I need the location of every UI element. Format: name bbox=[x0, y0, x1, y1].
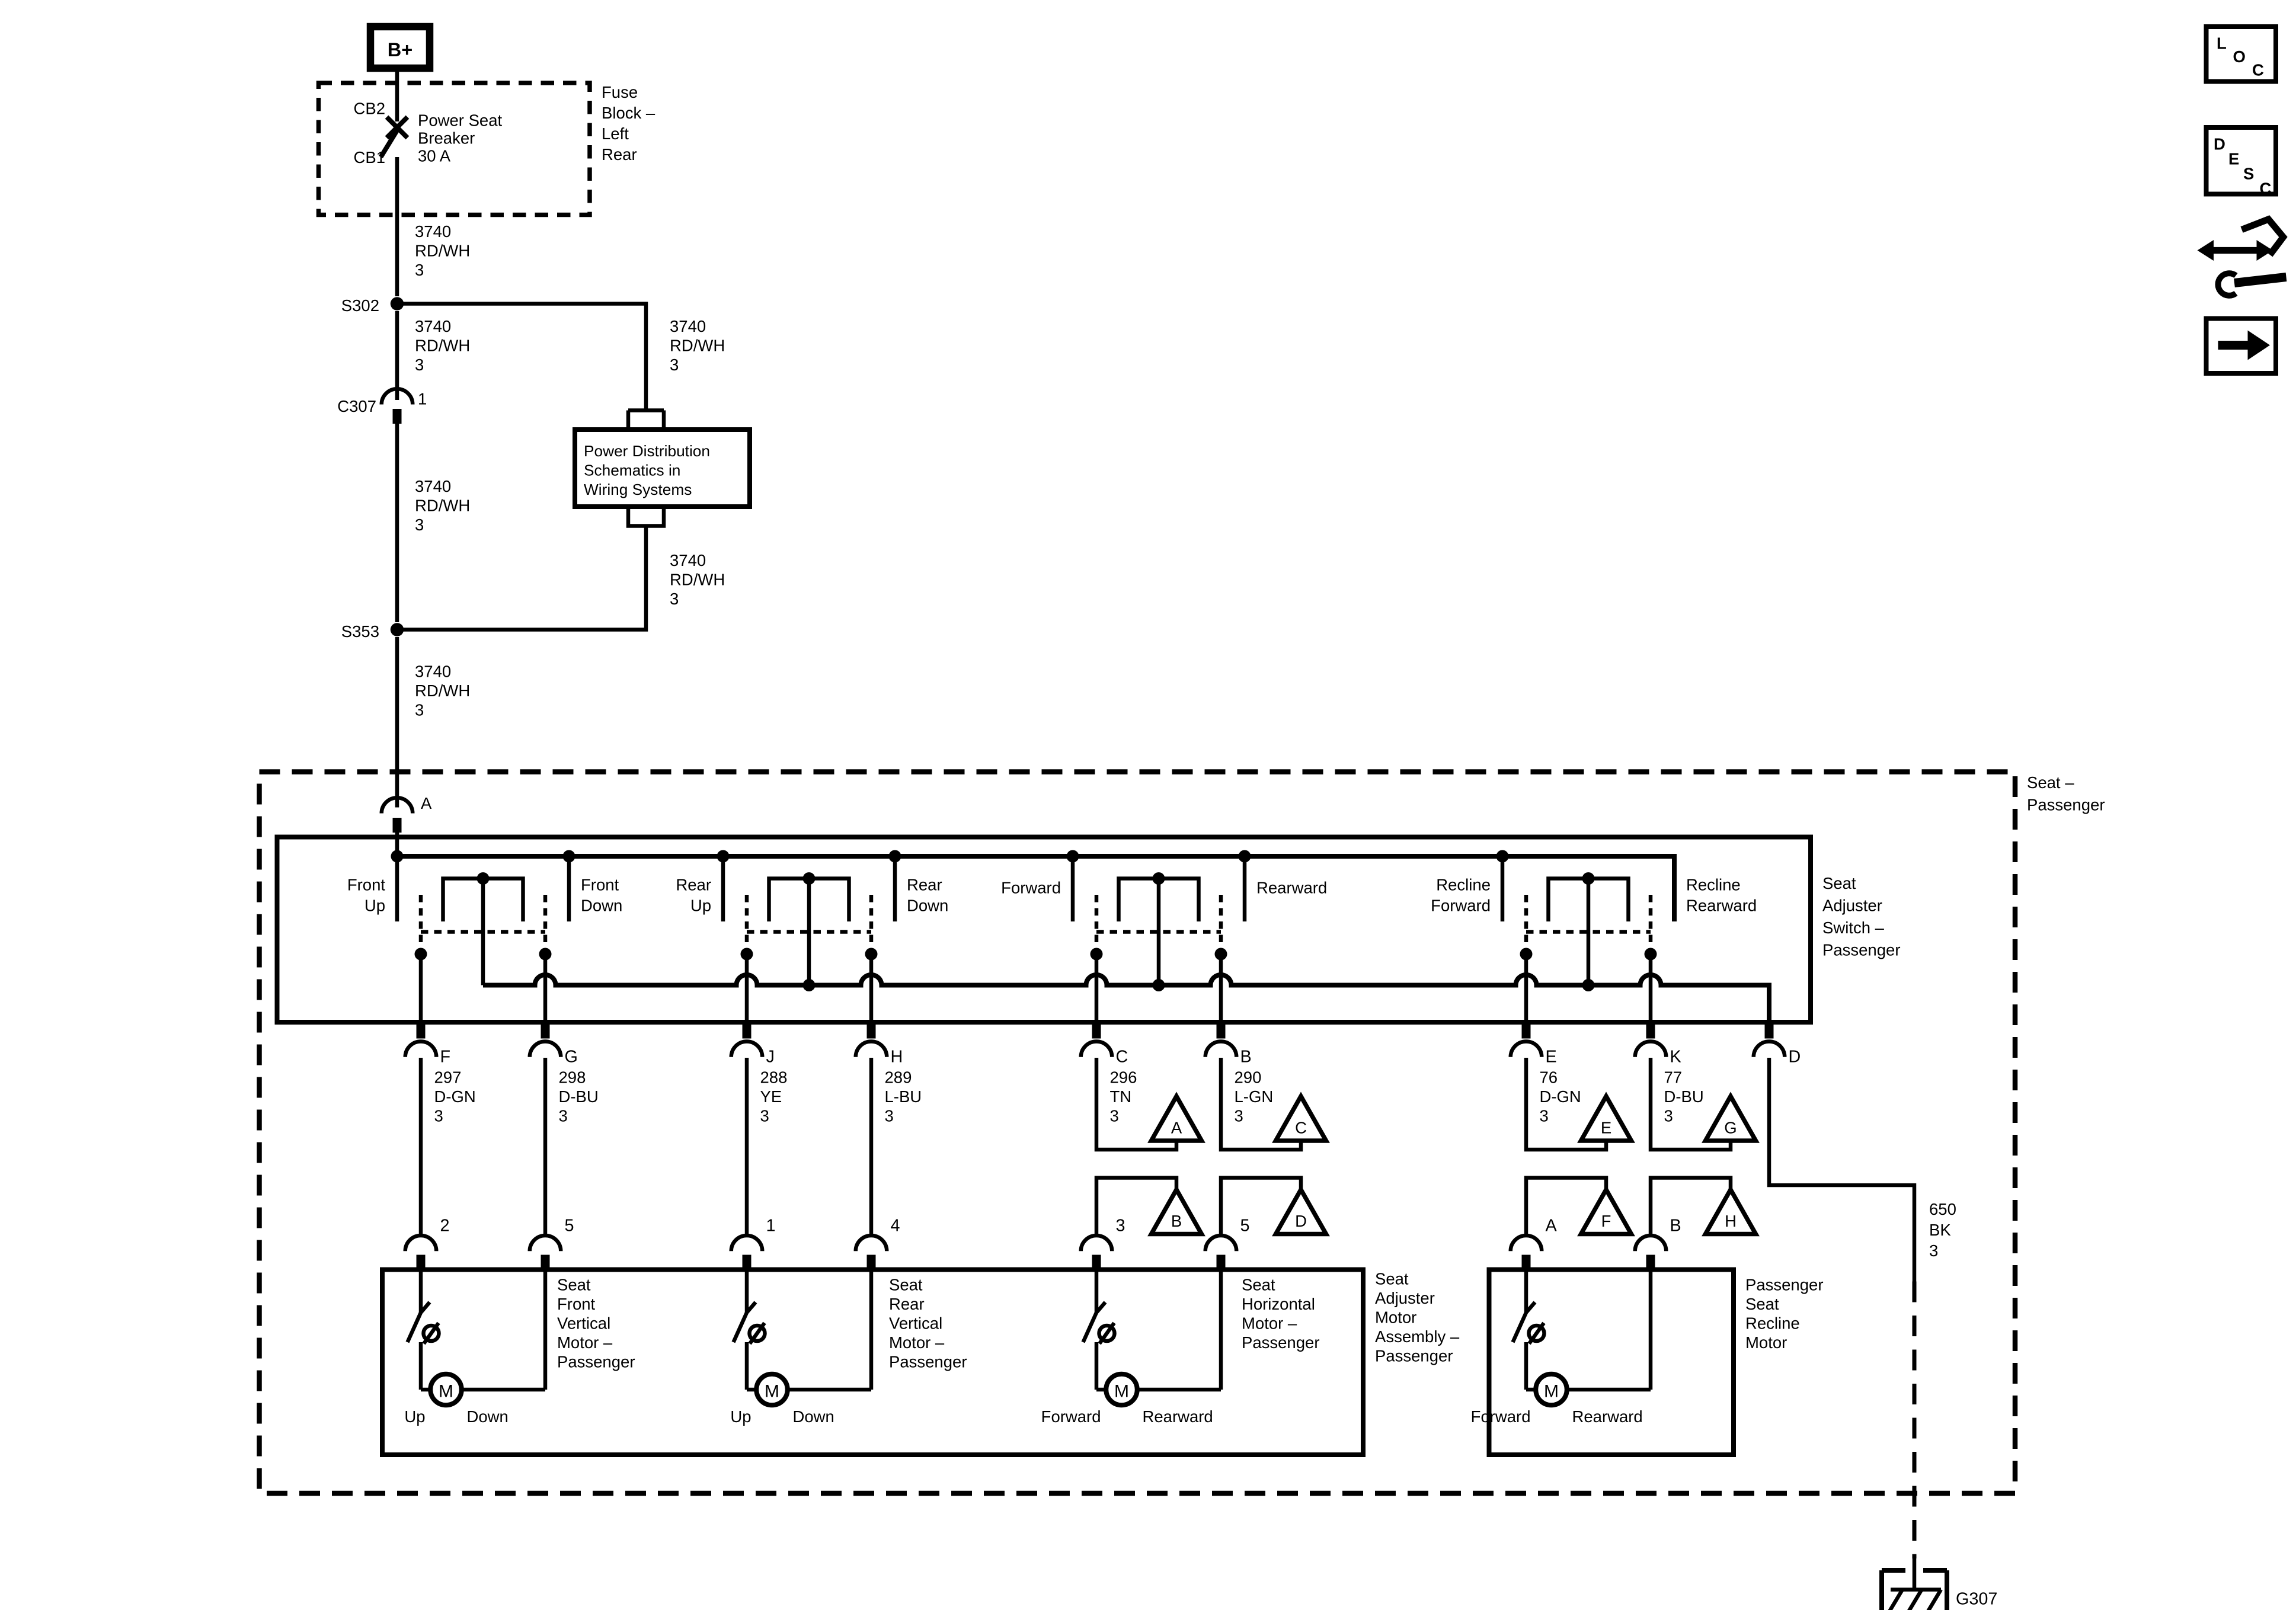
svg-text:Down: Down bbox=[907, 896, 948, 914]
svg-text:3: 3 bbox=[1235, 1106, 1243, 1125]
pin-g: G 298 D-BU 3 bbox=[530, 1022, 599, 1236]
wire-3740-label-4: 3740 RD/WH 3 bbox=[415, 477, 470, 534]
pin-d: D bbox=[1754, 1022, 1801, 1067]
svg-text:A: A bbox=[1171, 1118, 1182, 1137]
svg-text:B: B bbox=[1171, 1212, 1182, 1230]
wire-3740-label-6: 3740 RD/WH 3 bbox=[415, 663, 470, 719]
svg-text:3: 3 bbox=[1540, 1106, 1549, 1125]
svg-text:298: 298 bbox=[559, 1068, 586, 1086]
motor-recline: M Forward Rearward bbox=[1471, 1271, 1651, 1426]
ground-wire-650: 650 BK 3 bbox=[1769, 1058, 1956, 1558]
ground-g307: G307 bbox=[1882, 1558, 1997, 1610]
svg-text:G: G bbox=[565, 1047, 578, 1066]
svg-text:Rear: Rear bbox=[907, 875, 942, 894]
svg-text:K: K bbox=[1670, 1047, 1681, 1066]
a-pin-label: A bbox=[421, 794, 432, 812]
pin-e: E 76 D-GN 3 E F bbox=[1511, 1022, 1632, 1236]
svg-text:5: 5 bbox=[1240, 1217, 1250, 1236]
switch-horizontal[interactable]: Forward Rearward bbox=[1001, 856, 1327, 1022]
svg-text:Adjuster: Adjuster bbox=[1375, 1289, 1435, 1307]
svg-text:O: O bbox=[2233, 47, 2246, 66]
svg-text:M: M bbox=[1114, 1382, 1129, 1401]
svg-text:Passenger: Passenger bbox=[2027, 796, 2105, 814]
pin-h: H 289 L-BU 3 bbox=[856, 1022, 922, 1236]
svg-text:D-BU: D-BU bbox=[1664, 1087, 1704, 1106]
circuit-breaker-symbol bbox=[381, 117, 408, 296]
svg-text:G: G bbox=[1724, 1118, 1737, 1137]
svg-text:BK: BK bbox=[1929, 1221, 1951, 1239]
svg-text:77: 77 bbox=[1664, 1068, 1683, 1086]
svg-text:3: 3 bbox=[1664, 1106, 1673, 1125]
svg-text:Up: Up bbox=[404, 1407, 425, 1426]
right-arrow-icon bbox=[2218, 331, 2271, 360]
svg-text:B: B bbox=[1670, 1217, 1681, 1236]
s302-label: S302 bbox=[341, 296, 379, 315]
svg-text:Seat: Seat bbox=[1375, 1270, 1409, 1288]
svg-text:D-GN: D-GN bbox=[434, 1087, 476, 1106]
svg-text:3: 3 bbox=[559, 1106, 568, 1125]
repair-tools-button[interactable] bbox=[2198, 219, 2287, 296]
svg-text:1: 1 bbox=[766, 1217, 776, 1236]
svg-text:290: 290 bbox=[1235, 1068, 1262, 1086]
svg-text:E: E bbox=[2228, 149, 2239, 168]
svg-text:Motor –: Motor – bbox=[557, 1333, 613, 1352]
svg-text:H: H bbox=[1725, 1212, 1737, 1230]
svg-text:Rear: Rear bbox=[602, 145, 637, 164]
svg-text:F: F bbox=[440, 1047, 451, 1066]
svg-text:3740: 3740 bbox=[415, 222, 451, 241]
wire-3740-label-5: 3740 RD/WH 3 bbox=[670, 551, 725, 608]
svg-text:3: 3 bbox=[415, 516, 424, 534]
motor-pin-b: B bbox=[1635, 1217, 1681, 1272]
svg-text:Down: Down bbox=[793, 1407, 834, 1426]
svg-text:288: 288 bbox=[760, 1068, 788, 1086]
svg-text:Switch –: Switch – bbox=[1822, 918, 1885, 937]
svg-text:S: S bbox=[2243, 165, 2254, 183]
svg-text:3740: 3740 bbox=[670, 317, 706, 335]
svg-text:Horizontal: Horizontal bbox=[1242, 1295, 1315, 1313]
motor-pin-5b: 5 bbox=[1205, 1217, 1250, 1272]
power-distribution-reference: Power Distribution Schematics in Wiring … bbox=[397, 410, 750, 629]
switch-recline[interactable]: Recline Forward Recline Rearward bbox=[1431, 856, 1757, 1022]
wire-3740-label-3: 3740 RD/WH 3 bbox=[670, 317, 725, 374]
svg-text:Seat: Seat bbox=[557, 1276, 591, 1294]
svg-text:Front: Front bbox=[347, 875, 386, 894]
svg-text:RD/WH: RD/WH bbox=[415, 337, 470, 355]
svg-text:D: D bbox=[1789, 1047, 1801, 1066]
svg-text:Up: Up bbox=[690, 896, 711, 914]
svg-text:F: F bbox=[1601, 1212, 1611, 1230]
svg-text:3740: 3740 bbox=[415, 477, 451, 495]
svg-text:Assembly –: Assembly – bbox=[1375, 1327, 1460, 1346]
motor-connector-row: 2 5 1 4 3 5 A bbox=[405, 1217, 1681, 1272]
svg-text:30 A: 30 A bbox=[418, 146, 451, 165]
svg-text:Rear: Rear bbox=[889, 1295, 925, 1313]
connector-c307: C307 1 bbox=[337, 311, 427, 622]
svg-text:3740: 3740 bbox=[670, 551, 706, 569]
svg-text:RD/WH: RD/WH bbox=[415, 681, 470, 700]
breaker-name: Power Seat bbox=[418, 111, 503, 129]
svg-text:RD/WH: RD/WH bbox=[415, 496, 470, 514]
svg-text:Passenger: Passenger bbox=[889, 1353, 967, 1371]
svg-text:Vertical: Vertical bbox=[889, 1314, 942, 1333]
svg-text:Seat: Seat bbox=[1822, 874, 1856, 892]
svg-text:C: C bbox=[1116, 1047, 1128, 1066]
svg-text:3: 3 bbox=[670, 356, 679, 374]
svg-text:D-BU: D-BU bbox=[559, 1087, 599, 1106]
fuse-block-name: Fuse bbox=[602, 83, 638, 101]
pin-f: F 297 D-GN 3 bbox=[405, 1022, 476, 1236]
fuse-block: CB2 CB1 Power Seat Breaker 30 A Fuse Blo… bbox=[319, 83, 655, 296]
svg-text:M: M bbox=[765, 1382, 779, 1401]
svg-text:3: 3 bbox=[1929, 1241, 1938, 1260]
motor-pin-2: 2 bbox=[405, 1217, 450, 1272]
svg-text:E: E bbox=[1546, 1047, 1557, 1066]
wire-3740-label-1: 3740 RD/WH 3 bbox=[415, 222, 470, 279]
svg-text:L-BU: L-BU bbox=[885, 1087, 922, 1106]
loc-icon: L O C bbox=[2217, 34, 2264, 79]
svg-text:3740: 3740 bbox=[415, 663, 451, 681]
s353-label: S353 bbox=[341, 622, 379, 641]
svg-text:Breaker: Breaker bbox=[418, 129, 475, 147]
svg-text:4: 4 bbox=[891, 1217, 900, 1236]
svg-text:76: 76 bbox=[1540, 1068, 1558, 1086]
motor-pin-5a: 5 bbox=[530, 1217, 574, 1272]
svg-text:Rear: Rear bbox=[676, 875, 711, 894]
svg-text:Passenger: Passenger bbox=[1745, 1276, 1823, 1294]
svg-text:Seat: Seat bbox=[889, 1276, 923, 1294]
svg-text:Adjuster: Adjuster bbox=[1822, 896, 1882, 914]
svg-text:L-GN: L-GN bbox=[1235, 1087, 1274, 1106]
svg-text:B: B bbox=[1240, 1047, 1252, 1066]
svg-text:Front: Front bbox=[581, 875, 619, 894]
svg-text:Left: Left bbox=[602, 124, 629, 143]
svg-text:C: C bbox=[2260, 180, 2272, 198]
thermal-breaker-icon bbox=[1513, 1302, 1536, 1343]
motor-assembly-label: Seat Adjuster Motor Assembly – Passenger bbox=[1375, 1270, 1460, 1365]
svg-text:3: 3 bbox=[760, 1106, 769, 1125]
svg-text:Seat: Seat bbox=[1242, 1276, 1275, 1294]
svg-text:Recline: Recline bbox=[1436, 875, 1491, 894]
svg-text:3: 3 bbox=[1116, 1217, 1125, 1236]
svg-text:Recline: Recline bbox=[1745, 1314, 1800, 1333]
thermal-breaker-icon bbox=[1083, 1302, 1106, 1343]
svg-text:Passenger: Passenger bbox=[1242, 1333, 1319, 1352]
thermal-breaker-icon bbox=[734, 1302, 756, 1343]
bplus-label: B+ bbox=[388, 39, 412, 60]
svg-text:3: 3 bbox=[415, 261, 424, 279]
thermal-breaker-icon bbox=[408, 1302, 430, 1343]
motor-pin-1: 1 bbox=[731, 1217, 776, 1272]
svg-text:C: C bbox=[2252, 60, 2264, 79]
svg-text:2: 2 bbox=[440, 1217, 450, 1236]
recline-motor-label: Passenger Seat Recline Motor bbox=[1745, 1276, 1823, 1352]
pin-b: B 290 L-GN 3 C D bbox=[1205, 1022, 1326, 1236]
svg-text:Rearward: Rearward bbox=[1686, 896, 1757, 914]
svg-text:Motor: Motor bbox=[1375, 1308, 1416, 1327]
loc-button[interactable]: L O C bbox=[2207, 27, 2276, 82]
svg-text:Schematics in: Schematics in bbox=[584, 461, 680, 479]
svg-text:289: 289 bbox=[885, 1068, 912, 1086]
svg-text:H: H bbox=[891, 1047, 903, 1066]
svg-text:Rearward: Rearward bbox=[1572, 1407, 1643, 1426]
svg-text:Down: Down bbox=[467, 1407, 509, 1426]
svg-text:RD/WH: RD/WH bbox=[670, 570, 725, 588]
svg-text:Motor –: Motor – bbox=[889, 1333, 945, 1352]
motor-pin-4: 4 bbox=[856, 1217, 900, 1272]
svg-text:3: 3 bbox=[670, 590, 679, 608]
pin-c: C 296 TN 3 A B bbox=[1081, 1022, 1202, 1236]
svg-text:M: M bbox=[1544, 1382, 1559, 1401]
svg-text:Block –: Block – bbox=[602, 104, 655, 122]
svg-text:Vertical: Vertical bbox=[557, 1314, 610, 1333]
seat-adjuster-switch-box bbox=[277, 837, 1811, 1022]
svg-text:Seat –: Seat – bbox=[2027, 773, 2074, 792]
switch-common-return-wire bbox=[483, 975, 1769, 1022]
next-button[interactable] bbox=[2207, 319, 2276, 374]
svg-text:D: D bbox=[2214, 135, 2225, 153]
svg-text:Front: Front bbox=[557, 1295, 596, 1313]
switch-rear-vertical[interactable]: Rear Up Rear Down bbox=[676, 856, 948, 1022]
svg-text:297: 297 bbox=[434, 1068, 462, 1086]
svg-text:5: 5 bbox=[565, 1217, 574, 1236]
splice-s353: S353 bbox=[341, 622, 404, 807]
connector-a: A bbox=[382, 794, 432, 856]
switch-connector-row: F 297 D-GN 3 G 298 D-BU 3 J 288 YE 3 bbox=[405, 1022, 1801, 1236]
wiring-diagram-page: B+ CB2 CB1 Power Seat Breaker 30 A Fuse … bbox=[0, 0, 2296, 1610]
svg-text:M: M bbox=[439, 1382, 453, 1401]
pin-j: J 288 YE 3 bbox=[731, 1022, 788, 1236]
svg-text:Rearward: Rearward bbox=[1143, 1407, 1213, 1426]
svg-text:Passenger: Passenger bbox=[1375, 1347, 1453, 1365]
svg-text:Forward: Forward bbox=[1041, 1407, 1101, 1426]
seat-adjuster-switch-label: Seat Adjuster Switch – Passenger bbox=[1822, 874, 1900, 959]
svg-text:Down: Down bbox=[581, 896, 622, 914]
svg-text:E: E bbox=[1601, 1118, 1611, 1137]
svg-text:RD/WH: RD/WH bbox=[670, 337, 725, 355]
desc-button[interactable]: D E S C bbox=[2207, 127, 2276, 197]
svg-text:3: 3 bbox=[885, 1106, 894, 1125]
svg-text:3: 3 bbox=[415, 701, 424, 719]
wrench-arrow-icon bbox=[2198, 219, 2287, 296]
motor-rear-vertical: M Up Down Seat Rear Vertical Motor – Pas… bbox=[730, 1271, 967, 1426]
motor-pin-a: A bbox=[1511, 1217, 1558, 1272]
svg-text:Up: Up bbox=[730, 1407, 751, 1426]
svg-text:Seat: Seat bbox=[1745, 1295, 1779, 1313]
svg-text:D-GN: D-GN bbox=[1540, 1087, 1581, 1106]
svg-text:Rearward: Rearward bbox=[1256, 878, 1327, 897]
svg-text:3: 3 bbox=[1110, 1106, 1119, 1125]
svg-text:Forward: Forward bbox=[1431, 896, 1491, 914]
svg-text:Motor: Motor bbox=[1745, 1333, 1787, 1352]
svg-text:L: L bbox=[2217, 34, 2227, 52]
svg-text:296: 296 bbox=[1110, 1068, 1137, 1086]
svg-text:650: 650 bbox=[1929, 1200, 1956, 1218]
svg-text:Forward: Forward bbox=[1001, 878, 1061, 897]
motor-pin-3: 3 bbox=[1081, 1217, 1125, 1272]
svg-text:3: 3 bbox=[415, 356, 424, 374]
svg-text:Wiring Systems: Wiring Systems bbox=[584, 481, 692, 498]
svg-text:A: A bbox=[1546, 1217, 1558, 1236]
svg-text:3740: 3740 bbox=[415, 317, 451, 335]
motor-front-vertical: M Up Down Seat Front Vertical Motor – Pa… bbox=[404, 1271, 635, 1426]
desc-icon: D E S C bbox=[2214, 135, 2272, 197]
g307-label: G307 bbox=[1956, 1590, 1997, 1609]
svg-text:D: D bbox=[1295, 1212, 1307, 1230]
c307-label: C307 bbox=[337, 397, 376, 415]
svg-text:Up: Up bbox=[364, 896, 385, 914]
svg-text:Recline: Recline bbox=[1686, 875, 1741, 894]
switch-front-vertical[interactable]: Front Up Front Down bbox=[347, 856, 623, 1022]
svg-text:J: J bbox=[766, 1047, 775, 1066]
svg-text:Passenger: Passenger bbox=[557, 1353, 635, 1371]
pin-k: K 77 D-BU 3 G H bbox=[1635, 1022, 1756, 1236]
seat-passenger-label: Seat – Passenger bbox=[2027, 773, 2105, 814]
svg-text:Power Distribution: Power Distribution bbox=[584, 442, 710, 460]
svg-text:C: C bbox=[1295, 1118, 1307, 1137]
power-seat-schematic: B+ CB2 CB1 Power Seat Breaker 30 A Fuse … bbox=[0, 0, 2296, 1610]
svg-text:Motor –: Motor – bbox=[1242, 1314, 1297, 1333]
wire-3740-label-2: 3740 RD/WH 3 bbox=[415, 317, 470, 374]
svg-text:Forward: Forward bbox=[1471, 1407, 1531, 1426]
svg-text:YE: YE bbox=[760, 1087, 782, 1106]
svg-text:TN: TN bbox=[1110, 1087, 1132, 1106]
cb1-label: CB1 bbox=[354, 148, 385, 167]
svg-text:Passenger: Passenger bbox=[1822, 940, 1900, 959]
c307-pin-label: 1 bbox=[418, 390, 427, 408]
svg-text:3: 3 bbox=[434, 1106, 443, 1125]
cb2-label: CB2 bbox=[354, 100, 385, 118]
motor-horizontal: M Forward Rearward Seat Horizontal Motor… bbox=[1041, 1271, 1320, 1426]
svg-text:RD/WH: RD/WH bbox=[415, 241, 470, 260]
